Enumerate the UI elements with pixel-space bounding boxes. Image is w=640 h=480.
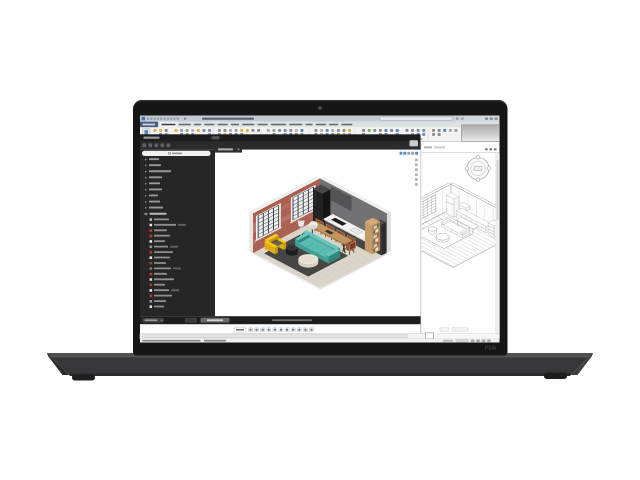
svg-text:P14s: P14s xyxy=(485,346,497,352)
